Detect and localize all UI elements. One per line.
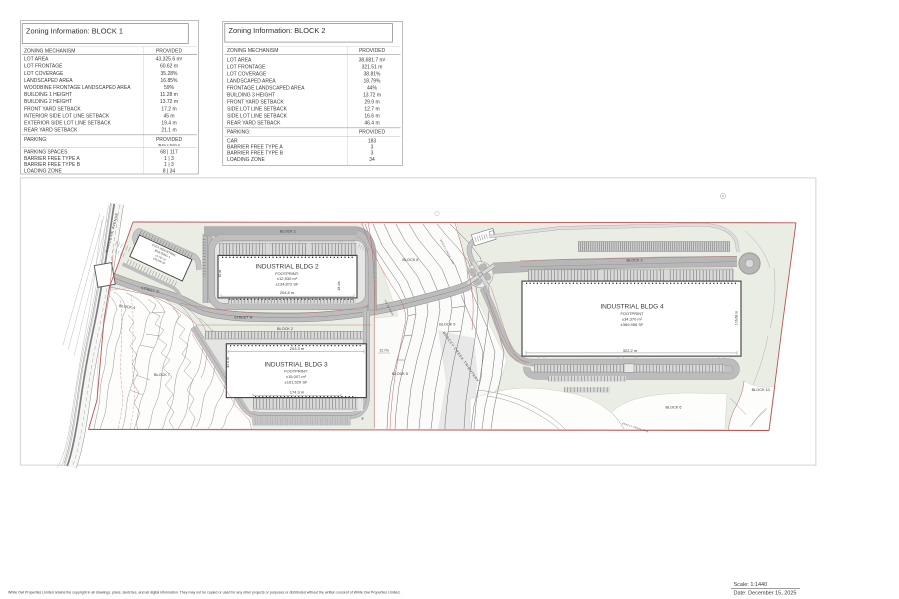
svg-text:8 | 34: 8 | 34 xyxy=(163,168,176,174)
svg-text:21.1 m: 21.1 m xyxy=(161,128,176,134)
svg-text:13.72 m: 13.72 m xyxy=(160,99,178,105)
svg-text:322.2 m: 322.2 m xyxy=(623,348,638,353)
svg-text:Scale: 1:1440: Scale: 1:1440 xyxy=(734,582,768,588)
svg-text:45 m: 45 m xyxy=(163,113,174,119)
svg-text:34: 34 xyxy=(369,157,375,163)
svg-text:FOOTPRINT: FOOTPRINT xyxy=(620,311,644,316)
svg-text:INDUSTRIAL BLDG 2: INDUSTRIAL BLDG 2 xyxy=(255,264,319,271)
svg-text:44%: 44% xyxy=(367,86,378,92)
svg-text:1 | 3: 1 | 3 xyxy=(164,162,174,168)
svg-text:CAR: CAR xyxy=(227,138,238,144)
svg-text:BLOCK 3: BLOCK 3 xyxy=(626,259,642,263)
svg-text:SIDE LOT LINE SETBACK: SIDE LOT LINE SETBACK xyxy=(227,107,288,113)
svg-text:REAR YARD SETBACK: REAR YARD SETBACK xyxy=(24,128,78,134)
svg-text:35.28%: 35.28% xyxy=(161,71,179,77)
svg-text:PARKING SPACES: PARKING SPACES xyxy=(24,150,68,156)
svg-text:PARKING:: PARKING: xyxy=(227,130,251,136)
svg-text:203.3 m: 203.3 m xyxy=(290,346,305,351)
svg-text:1 | 3: 1 | 3 xyxy=(164,156,174,162)
svg-text:±161,529 SF: ±161,529 SF xyxy=(285,380,308,385)
svg-text:68 | 117: 68 | 117 xyxy=(160,150,178,156)
svg-text:Date: December 15, 2025: Date: December 15, 2025 xyxy=(734,590,797,596)
svg-text:LOT FRONTAGE: LOT FRONTAGE xyxy=(24,64,63,70)
svg-text:BLOCK 2: BLOCK 2 xyxy=(277,327,293,331)
svg-text:BUILDING 3 HEIGHT: BUILDING 3 HEIGHT xyxy=(227,93,275,99)
svg-text:29.9 m: 29.9 m xyxy=(364,100,379,106)
svg-text:17.2 m: 17.2 m xyxy=(161,106,176,112)
svg-text:13.72 m: 13.72 m xyxy=(363,93,381,99)
svg-text:ZONING MECHANISM: ZONING MECHANISM xyxy=(24,48,75,54)
svg-text:LOADING ZONE: LOADING ZONE xyxy=(227,157,265,163)
svg-text:PROVIDED: PROVIDED xyxy=(359,48,386,54)
svg-text:Zoning Information: BLOCK 1: Zoning Information: BLOCK 1 xyxy=(26,27,123,36)
svg-text:60.62 m: 60.62 m xyxy=(160,64,178,70)
svg-text:43,325.6 m²: 43,325.6 m² xyxy=(156,57,183,63)
svg-text:BLOCK 8: BLOCK 8 xyxy=(402,258,418,262)
svg-text:±134,872 SF: ±134,872 SF xyxy=(276,282,299,287)
svg-text:STREET 'A': STREET 'A' xyxy=(234,315,253,319)
svg-text:±34,370 m²: ±34,370 m² xyxy=(622,316,643,321)
svg-text:WOODBINE FRONTAGE LANDSCAPED A: WOODBINE FRONTAGE LANDSCAPED AREA xyxy=(24,85,131,91)
svg-text:BARRIER FREE TYPE A: BARRIER FREE TYPE A xyxy=(24,156,80,162)
svg-text:12.7m: 12.7m xyxy=(379,349,388,353)
svg-text:BLOCK 5: BLOCK 5 xyxy=(392,372,408,376)
svg-text:PROVIDED: PROVIDED xyxy=(156,48,183,54)
svg-text:42.6 m: 42.6 m xyxy=(226,357,230,368)
svg-text:BARRIER FREE TYPE B: BARRIER FREE TYPE B xyxy=(24,162,81,168)
svg-text:±15,007 m²: ±15,007 m² xyxy=(286,374,307,379)
svg-text:11.28 m: 11.28 m xyxy=(160,92,178,98)
svg-text:EXTERIOR SIDE LOT LINE SETBACK: EXTERIOR SIDE LOT LINE SETBACK xyxy=(24,121,112,127)
svg-text:BUILDING 1 HEIGHT: BUILDING 1 HEIGHT xyxy=(24,92,72,98)
svg-text:16.85%: 16.85% xyxy=(161,78,179,84)
svg-text:±369,956 SF: ±369,956 SF xyxy=(621,322,644,327)
svg-text:183: 183 xyxy=(368,138,377,144)
svg-text:Zoning Information: BLOCK 2: Zoning Information: BLOCK 2 xyxy=(229,26,326,35)
svg-text:FRONTAGE LANDSCAPED AREA: FRONTAGE LANDSCAPED AREA xyxy=(227,86,305,92)
svg-text:LOADING ZONE: LOADING ZONE xyxy=(24,168,62,174)
svg-text:18.79%: 18.79% xyxy=(364,79,382,85)
svg-text:19.4 m: 19.4 m xyxy=(161,121,176,127)
svg-text:BUILDING 2 HEIGHT: BUILDING 2 HEIGHT xyxy=(24,99,72,105)
svg-text:59%: 59% xyxy=(164,85,175,91)
svg-text:18.4m: 18.4m xyxy=(337,281,341,290)
svg-text:LOT COVERAGE: LOT COVERAGE xyxy=(227,72,267,78)
svg-text:FRONT YARD SETBACK: FRONT YARD SETBACK xyxy=(227,100,284,106)
svg-text:204.8 m: 204.8 m xyxy=(280,290,295,295)
svg-text:3: 3 xyxy=(371,151,374,157)
svg-text:PROVIDED: PROVIDED xyxy=(156,137,183,143)
svg-text:BARRIER FREE TYPE A: BARRIER FREE TYPE A xyxy=(227,145,283,151)
svg-text:174.3 m: 174.3 m xyxy=(290,390,305,395)
svg-text:PARKING:: PARKING: xyxy=(24,137,48,143)
svg-text:±12,530 m²: ±12,530 m² xyxy=(277,276,298,281)
svg-text:BLOCK 10: BLOCK 10 xyxy=(752,388,770,392)
svg-text:(BLDG 1 | BLDG 2): (BLDG 1 | BLDG 2) xyxy=(158,143,180,147)
svg-text:FRONT YARD SETBACK: FRONT YARD SETBACK xyxy=(24,106,81,112)
svg-text:16.6 m: 16.6 m xyxy=(364,114,379,120)
svg-text:38,681.7 m²: 38,681.7 m² xyxy=(359,58,386,64)
svg-text:BLOCK 6: BLOCK 6 xyxy=(665,406,681,410)
svg-text:BARRIER FREE TYPE B: BARRIER FREE TYPE B xyxy=(227,151,284,157)
svg-text:LANDSCAPED AREA: LANDSCAPED AREA xyxy=(24,78,73,84)
svg-text:LOT AREA: LOT AREA xyxy=(24,57,49,63)
svg-text:REAR YARD SETBACK: REAR YARD SETBACK xyxy=(227,121,281,127)
svg-text:INDUSTRIAL BLDG 4: INDUSTRIAL BLDG 4 xyxy=(600,303,664,310)
svg-text:PROVIDED: PROVIDED xyxy=(359,130,386,136)
svg-text:INDUSTRIAL BLDG 3: INDUSTRIAL BLDG 3 xyxy=(264,361,328,368)
svg-text:12.7 m: 12.7 m xyxy=(364,107,379,113)
svg-text:321.51 m: 321.51 m xyxy=(362,65,383,71)
svg-text:BLOCK 9: BLOCK 9 xyxy=(439,323,455,327)
svg-text:LOT FRONTAGE: LOT FRONTAGE xyxy=(227,65,266,71)
svg-text:LOT COVERAGE: LOT COVERAGE xyxy=(24,71,64,77)
svg-text:INTERIOR SIDE LOT LINE SETBACK: INTERIOR SIDE LOT LINE SETBACK xyxy=(24,113,110,119)
svg-text:BLOCK 7: BLOCK 7 xyxy=(154,373,170,377)
svg-text:ZONING MECHANISM: ZONING MECHANISM xyxy=(227,48,278,54)
svg-text:61 m: 61 m xyxy=(218,270,222,278)
svg-text:3: 3 xyxy=(371,145,374,151)
svg-text:46.4 m: 46.4 m xyxy=(364,121,379,127)
svg-text:FOOTPRINT:: FOOTPRINT: xyxy=(275,271,299,276)
svg-text:FOOTPRINT:: FOOTPRINT: xyxy=(284,369,308,374)
svg-text:106.68 m: 106.68 m xyxy=(735,311,739,325)
svg-text:SIDE LOT LINE SETBACK: SIDE LOT LINE SETBACK xyxy=(227,114,288,120)
svg-text:BLOCK 1: BLOCK 1 xyxy=(280,230,296,234)
svg-text:LOT AREA: LOT AREA xyxy=(227,58,252,64)
svg-text:White Owl Properties Limited r: White Owl Properties Limited retains the… xyxy=(8,591,400,595)
svg-text:LANDSCAPED AREA: LANDSCAPED AREA xyxy=(227,79,276,85)
svg-text:38.81%: 38.81% xyxy=(364,72,382,78)
